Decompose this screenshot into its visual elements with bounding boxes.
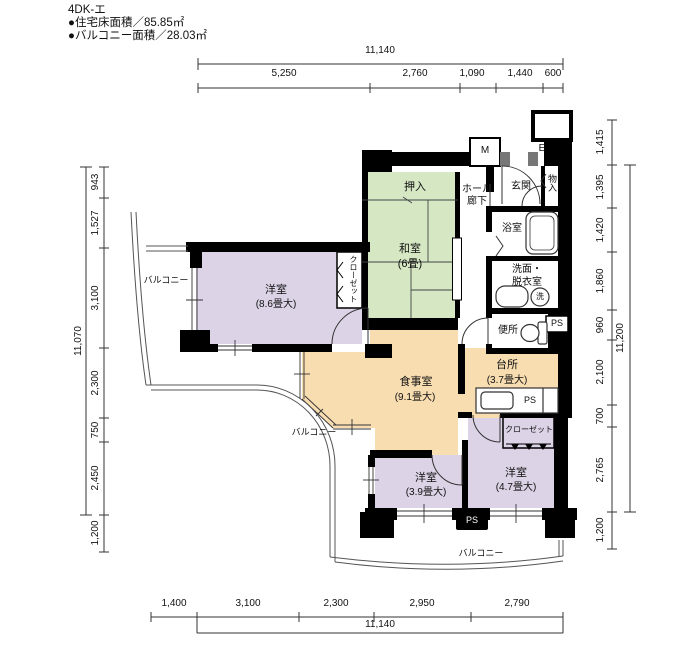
dim-right-seg-4: 960 <box>595 301 607 349</box>
dim-left-seg-1: 1,527 <box>90 199 102 247</box>
room-label-toilet: 便所 <box>486 325 530 337</box>
dim-bottom-seg-1: 3,100 <box>220 598 276 609</box>
balcony-area-line: ●バルコニー面積／28.03㎡ <box>68 27 207 43</box>
dim-top-seg-4: 600 <box>538 68 568 79</box>
room-label-hall-1: ホール <box>452 184 502 196</box>
meter-label: M <box>475 145 495 157</box>
room-size-washitsu: (6畳) <box>380 258 440 271</box>
closet-label-vertical: クローゼット <box>343 255 357 307</box>
dim-left-seg-3: 2,300 <box>90 359 102 407</box>
room-label-kitchen: 台所 <box>477 359 537 372</box>
dim-left-seg-4: 750 <box>90 406 102 454</box>
balcony-label-mid: バルコニー <box>289 427 339 437</box>
room-label-bath: 浴室 <box>487 223 537 235</box>
room-label-hall-2: 廊下 <box>452 196 502 208</box>
elevator-shaft <box>533 112 571 140</box>
dim-right-seg-8: 1,200 <box>595 506 607 554</box>
ps-label-kitchen: PS <box>519 395 541 405</box>
room-size-bed-small: (3.9畳大) <box>391 487 461 499</box>
kitchen-sink <box>481 392 513 409</box>
dim-left-seg-5: 2,450 <box>90 454 102 502</box>
room-label-genkan: 玄関 <box>496 181 546 193</box>
dim-top-seg-1: 2,760 <box>387 68 443 79</box>
sliding-door-panel <box>453 238 462 300</box>
dim-top-seg-0: 5,250 <box>256 68 312 79</box>
dim-right-overall: 11,200 <box>615 314 627 362</box>
balcony-label-bottom: バルコニー <box>453 548 509 558</box>
dim-bottom-seg-3: 2,950 <box>394 598 450 609</box>
dim-left-overall: 11,070 <box>73 317 85 365</box>
dim-right-seg-1: 1,395 <box>595 163 607 211</box>
floor-plan-page: 4DK-エ ●住宅床面積／85.85㎡ ●バルコニー面積／28.03㎡ 押入 和… <box>0 0 700 650</box>
door-frame-hatch-left <box>500 152 510 166</box>
ps-label-right: PS <box>547 318 567 328</box>
room-label-bed-main: 洋室 <box>246 284 306 297</box>
room-label-washitsu: 和室 <box>380 243 440 256</box>
ps-label-bottom: PS <box>461 515 483 525</box>
wash-basin <box>496 286 528 307</box>
dim-left-seg-2: 3,100 <box>90 274 102 322</box>
dim-bottom-seg-0: 1,400 <box>146 598 202 609</box>
room-label-monoire: 物入 <box>543 174 556 212</box>
elevator-label: E <box>532 143 552 155</box>
room-size-bed-main: (8.6畳大) <box>241 299 311 311</box>
room-label-senmen-2: 脱衣室 <box>502 277 552 289</box>
room-label-bed-small: 洋室 <box>396 472 456 485</box>
room-label-oshiire: 押入 <box>390 181 440 194</box>
dim-top-seg-2: 1,090 <box>450 68 494 79</box>
dim-bottom-seg-4: 2,790 <box>489 598 545 609</box>
dim-right-seg-0: 1,415 <box>595 118 607 166</box>
room-size-kitchen: (3.7畳大) <box>472 375 542 387</box>
balcony-label-left: バルコニー <box>141 275 191 285</box>
room-label-bed-mid: 洋室 <box>486 467 546 480</box>
dim-left-seg-6: 1,200 <box>90 509 102 557</box>
dim-right-seg-7: 2,765 <box>595 446 607 494</box>
room-size-dining: (9.1畳大) <box>380 392 450 404</box>
dim-bottom-overall: 11,140 <box>352 619 408 630</box>
dim-bottom-seg-2: 2,300 <box>308 598 364 609</box>
dim-right-seg-5: 2,100 <box>595 348 607 396</box>
dim-top-overall: 11,140 <box>352 45 408 56</box>
dim-right-seg-3: 1,860 <box>595 257 607 305</box>
room-label-senmen-1: 洗面・ <box>502 264 552 276</box>
room-size-bed-mid: (4.7畳大) <box>481 482 551 494</box>
dim-right-seg-6: 700 <box>595 392 607 440</box>
dim-top-seg-3: 1,440 <box>498 68 542 79</box>
dim-right-seg-2: 1,420 <box>595 206 607 254</box>
room-label-dining: 食事室 <box>381 376 451 389</box>
washing-machine-label: 洗 <box>534 292 546 301</box>
closet-label-horizontal: クローゼット <box>504 425 554 434</box>
